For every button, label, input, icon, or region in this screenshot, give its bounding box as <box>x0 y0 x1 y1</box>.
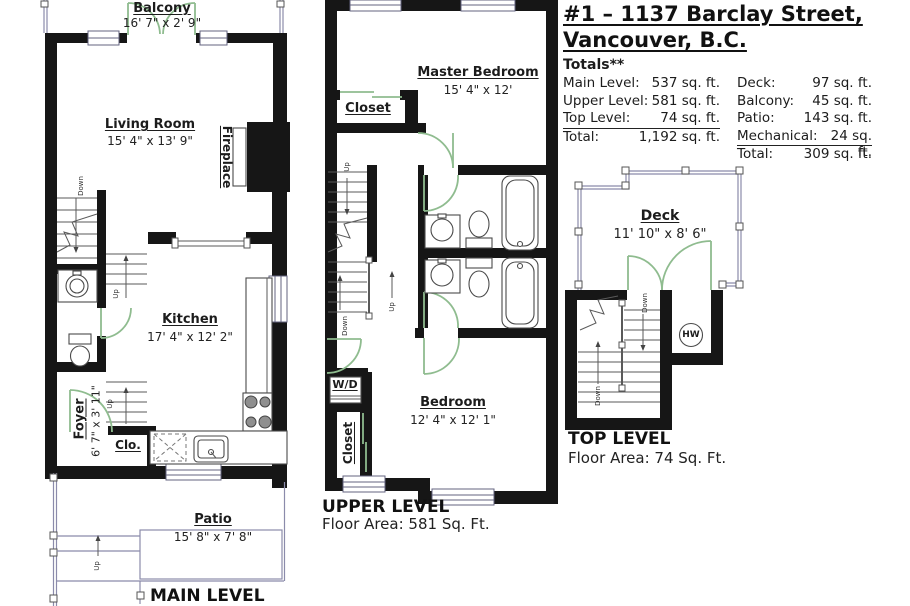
toilet-icon <box>71 346 90 366</box>
foyer-label: Foyer <box>73 399 88 440</box>
fireplace-label: Fireplace <box>220 126 234 188</box>
patio-label: Patio <box>194 512 232 527</box>
totals-row: Main Level: 537 sq. ft. <box>563 75 720 93</box>
closet-label: Clo. <box>115 438 141 452</box>
master-bedroom-label: Master Bedroom <box>417 65 538 80</box>
page-title-line1: #1 – 1137 Barclay Street, <box>563 2 863 26</box>
totals-row: Total: 1,192 sq. ft. <box>563 129 720 147</box>
deck-dims: 11' 10" x 8' 6" <box>614 227 707 242</box>
totals-row: Deck: 97 sq. ft. <box>737 75 872 93</box>
down-label: Down <box>594 386 602 406</box>
bedroom-label: Bedroom <box>420 395 486 410</box>
up-label: Up <box>106 399 114 409</box>
totals-label: Balcony: <box>737 93 794 109</box>
totals-value: 581 sq. ft. <box>652 93 720 109</box>
bedroom-door <box>424 338 459 374</box>
totals-row: Upper Level: 581 sq. ft. <box>563 93 720 111</box>
upper-level-floor-area: Floor Area: 581 Sq. Ft. <box>322 515 490 533</box>
lower-closet-label: Closet <box>341 422 355 464</box>
down-label: Down <box>77 176 85 196</box>
totals-value: 97 sq. ft. <box>812 75 872 91</box>
bathroom2-door <box>424 292 458 328</box>
sink-icon <box>431 219 453 241</box>
page-title-line2: Vancouver, B.C. <box>563 28 747 52</box>
faucet-icon <box>438 259 446 263</box>
balcony-label: Balcony <box>133 1 191 16</box>
toilet-tank <box>466 258 492 268</box>
living-room-dims: 15' 4" x 13' 9" <box>107 134 193 148</box>
totals-label: Upper Level: <box>563 93 648 109</box>
deck-french-doors <box>628 241 711 290</box>
floor-plan-page: Balcony 16' 7" x 2' 9" Living Room 15' 4… <box>0 0 910 606</box>
balcony-dims: 16' 7" x 2' 9" <box>123 16 201 30</box>
bathroom2-fixtures <box>425 258 538 328</box>
totals-value: 309 sq. ft. <box>804 146 872 162</box>
down-label: Down <box>341 316 349 336</box>
down-label: Down <box>641 293 649 313</box>
totals-row: Patio: 143 sq. ft. <box>737 110 872 128</box>
totals-value: 537 sq. ft. <box>652 75 720 91</box>
totals-value: 1,192 sq. ft. <box>639 129 720 145</box>
totals-row: Balcony: 45 sq. ft. <box>737 93 872 111</box>
toilet-tank <box>69 334 91 344</box>
patio-dims: 15' 8" x 7' 8" <box>174 530 252 544</box>
bathroom1-fixtures <box>425 176 538 250</box>
totals-value: 143 sq. ft. <box>804 110 872 126</box>
totals-row: Top Level: 74 sq. ft. <box>563 110 720 129</box>
powder-door <box>101 308 131 338</box>
up-label: Up <box>93 561 101 571</box>
toilet-icon <box>469 271 489 297</box>
totals-label: Main Level: <box>563 75 640 91</box>
totals-label: Total: <box>737 146 773 162</box>
totals-label: Top Level: <box>563 110 630 126</box>
main-stairs-down <box>57 198 97 258</box>
main-level-plan <box>41 0 290 606</box>
bathroom1-door <box>424 175 458 211</box>
totals-label: Mechanical: <box>737 128 818 144</box>
kitchen-fixtures <box>150 278 287 464</box>
toilet-icon <box>469 211 489 237</box>
totals-label: Patio: <box>737 110 775 126</box>
totals-value: 74 sq. ft. <box>660 110 720 126</box>
counter <box>246 278 272 393</box>
master-bedroom-door <box>418 133 453 168</box>
totals-label: Deck: <box>737 75 776 91</box>
hot-water-label: HW <box>682 330 699 340</box>
totals-right-column: Deck: 97 sq. ft. Balcony: 45 sq. ft. Pat… <box>737 75 872 164</box>
washer-dryer-label: W/D <box>332 378 357 391</box>
totals-row: Total: 309 sq. ft. <box>737 146 872 164</box>
fireplace-firebox <box>233 128 246 186</box>
master-closet-slider <box>340 92 402 97</box>
living-room-label: Living Room <box>105 117 195 132</box>
up-label: Up <box>112 289 120 299</box>
totals-row: Mechanical: 24 sq. ft. <box>737 128 872 147</box>
kitchen-label: Kitchen <box>162 312 218 327</box>
toilet-tank <box>466 238 492 248</box>
totals-left-column: Main Level: 537 sq. ft. Upper Level: 581… <box>563 75 720 146</box>
top-level-floor-area: Floor Area: 74 Sq. Ft. <box>568 449 726 467</box>
living-kitchen-railing <box>172 238 250 248</box>
up-label: Up <box>388 302 396 312</box>
totals-heading: Totals** <box>563 57 624 73</box>
top-level-caption: TOP LEVEL <box>568 429 670 449</box>
master-closet-label: Closet <box>345 101 391 116</box>
upper-stairs <box>328 172 392 319</box>
bedroom-dims: 12' 4" x 12' 1" <box>410 413 496 427</box>
faucet-icon <box>73 271 81 275</box>
top-level-plan <box>565 167 743 430</box>
up-label: Up <box>343 162 351 172</box>
master-bedroom-dims: 15' 4" x 12' <box>444 83 513 97</box>
upper-level-caption: UPPER LEVEL <box>322 497 449 517</box>
kitchen-dims: 17' 4" x 12' 2" <box>147 330 233 344</box>
main-level-caption: MAIN LEVEL <box>150 586 265 606</box>
deck-label: Deck <box>641 208 680 224</box>
totals-label: Total: <box>563 129 599 145</box>
foyer-dims: 6' 7" x 3' 11" <box>90 385 103 457</box>
totals-value: 45 sq. ft. <box>812 93 872 109</box>
faucet-icon <box>438 214 446 218</box>
sink-icon <box>431 264 453 286</box>
